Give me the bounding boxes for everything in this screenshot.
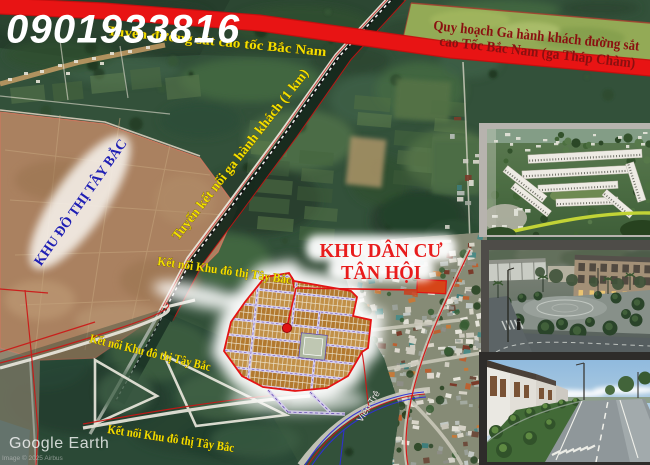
svg-text:Google Earth: Google Earth (9, 435, 109, 452)
svg-text:Image © 2025 Airbus: Image © 2025 Airbus (2, 454, 64, 462)
svg-text:0901933816: 0901933816 (6, 8, 240, 52)
svg-text:KHU DÂN CƯ: KHU DÂN CƯ (320, 240, 443, 262)
svg-text:TÂN HỘI: TÂN HỘI (341, 262, 421, 284)
